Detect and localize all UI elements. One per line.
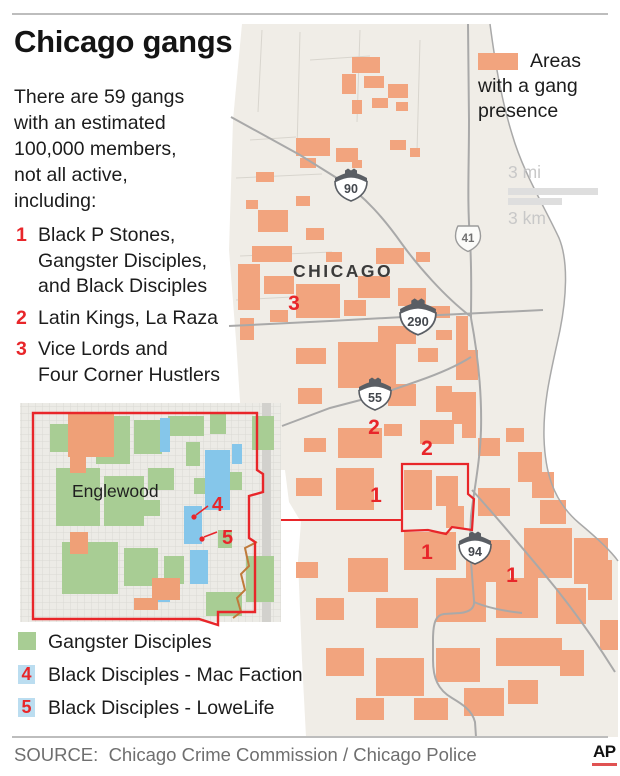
englewood-inset-map: Englewood 45 — [20, 403, 281, 625]
gang-area — [452, 392, 476, 424]
gang-area — [534, 638, 562, 666]
gang-area — [414, 698, 448, 720]
area-legend: Areas with a gang presence — [478, 49, 612, 124]
gang-area — [436, 476, 458, 506]
gang-area — [418, 348, 438, 362]
gang-area — [456, 350, 478, 380]
gang-list-label: Latin Kings, La Raza — [38, 306, 218, 332]
gang-area — [296, 478, 322, 496]
gang-area — [298, 388, 322, 404]
gang-area — [456, 316, 468, 352]
page-title: Chicago gangs — [14, 24, 232, 60]
top-rule — [12, 13, 608, 15]
ap-logo: AP — [592, 742, 617, 766]
gang-area — [364, 76, 384, 88]
gang-area — [336, 468, 374, 510]
gang-list-number: 3 — [16, 337, 38, 388]
gang-area — [296, 562, 318, 578]
gangster-disciples-block — [230, 472, 242, 490]
inset-legend-row: 5Black Disciples - LoweLife — [18, 698, 303, 718]
shield-number: 90 — [344, 182, 358, 196]
gang-area — [462, 420, 476, 438]
city-label: CHICAGO — [293, 261, 393, 281]
gang-area — [338, 342, 396, 388]
gang-area — [416, 252, 430, 262]
inset-legend-label: Black Disciples - Mac Faction — [48, 665, 303, 685]
shield-number: 41 — [462, 233, 475, 245]
gang-area — [384, 424, 402, 436]
gang-area — [396, 102, 408, 111]
gangster-disciples-block — [186, 442, 200, 466]
gang-area — [560, 650, 584, 676]
gangster-disciples-block — [168, 416, 204, 436]
gang-area — [256, 172, 274, 182]
black-disciples-block — [160, 418, 170, 452]
gang-area — [296, 348, 326, 364]
gang-area — [304, 438, 326, 452]
gang-area — [316, 598, 344, 620]
gang-area — [532, 472, 554, 498]
gang-list-item-2: 2Latin Kings, La Raza — [16, 306, 246, 332]
scale-km-label: 3 km — [508, 208, 546, 229]
gang-area — [252, 246, 292, 262]
gang-area — [356, 698, 384, 720]
other-gang-block — [68, 413, 114, 457]
gang-marker-1: 1 — [506, 564, 518, 587]
faction-marker-4: 4 — [212, 494, 224, 516]
gang-area — [258, 210, 288, 232]
gangster-disciples-swatch — [18, 632, 36, 650]
intro-text: There are 59 gangs with an estimated 100… — [14, 84, 229, 214]
gang-area — [508, 680, 538, 704]
shield-number: 55 — [368, 391, 382, 405]
gangster-disciples-block — [246, 556, 274, 602]
inset-legend-row: 4Black Disciples - Mac Faction — [18, 665, 303, 685]
gang-area — [600, 620, 618, 650]
gang-marker-2: 2 — [368, 416, 380, 439]
marker-dot — [199, 536, 204, 541]
gang-area — [436, 648, 480, 682]
gang-area — [306, 228, 324, 240]
gang-area — [390, 140, 406, 150]
gang-area — [296, 196, 310, 206]
gang-marker-3: 3 — [288, 292, 300, 315]
gang-area — [352, 160, 362, 168]
gang-area — [388, 84, 408, 98]
scale-bar-km — [508, 198, 562, 205]
gangster-disciples-block — [140, 500, 160, 516]
gang-area — [436, 578, 486, 622]
faction-number-swatch-4: 4 — [18, 665, 35, 684]
gangster-disciples-block — [210, 414, 226, 434]
gang-area — [326, 648, 364, 676]
gang-area — [246, 200, 258, 209]
gang-list-item-3: 3Vice Lords and Four Corner Hustlers — [16, 337, 246, 388]
gang-area — [342, 74, 356, 94]
gang-area-swatch — [478, 53, 518, 70]
inset-neighborhood-label: Englewood — [72, 481, 159, 501]
gang-list-item-1: 1Black P Stones, Gangster Disciples, and… — [16, 223, 246, 300]
infographic-canvas: CHICAGO 90412905594 322111 Englewood 45 … — [0, 0, 620, 776]
inset-legend-label: Black Disciples - LoweLife — [48, 698, 275, 718]
gang-area — [410, 148, 420, 157]
gang-area — [352, 57, 380, 73]
gang-area — [296, 284, 340, 318]
other-gang-block — [152, 578, 180, 600]
gangster-disciples-block — [134, 420, 162, 454]
black-disciples-block — [190, 550, 208, 584]
scale-bar-mi — [508, 188, 598, 195]
scale-mi-label: 3 mi — [508, 162, 541, 183]
gang-area — [506, 428, 524, 442]
faction-number-swatch-5: 5 — [18, 698, 35, 717]
gang-area — [496, 638, 534, 666]
gang-area — [446, 506, 464, 528]
gang-area — [344, 300, 366, 316]
other-gang-block — [134, 598, 158, 610]
gang-area — [270, 310, 288, 322]
other-gang-block — [70, 457, 86, 473]
gang-list-label: Black P Stones, Gangster Disciples, and … — [38, 223, 207, 300]
inset-legend-label: Gangster Disciples — [48, 632, 212, 652]
inset-legend-row: Gangster Disciples — [18, 632, 303, 652]
gang-list-number: 2 — [16, 306, 38, 332]
gang-area — [348, 558, 388, 592]
gang-marker-1: 1 — [421, 541, 433, 564]
gang-area — [376, 658, 424, 696]
inset-legend: Gangster Disciples4Black Disciples - Mac… — [18, 632, 303, 731]
gang-area — [296, 138, 330, 156]
shield-number: 94 — [468, 545, 482, 559]
gang-area — [436, 330, 452, 340]
other-gang-block — [70, 532, 88, 554]
land-area — [229, 24, 618, 737]
gang-area — [352, 100, 362, 114]
black-disciples-block — [232, 444, 242, 464]
gang-marker-2: 2 — [421, 437, 433, 460]
gang-area — [372, 98, 388, 108]
source-line: SOURCE: Chicago Crime Commission / Chica… — [14, 744, 477, 766]
gang-marker-1: 1 — [370, 484, 382, 507]
gangster-disciples-block — [252, 416, 274, 450]
gang-area — [524, 528, 572, 578]
faction-marker-5: 5 — [222, 527, 233, 549]
gang-list-label: Vice Lords and Four Corner Hustlers — [38, 337, 220, 388]
gang-area — [404, 470, 432, 510]
gangster-disciples-block — [194, 478, 206, 494]
gang-area — [336, 148, 358, 162]
gang-list: 1Black P Stones, Gangster Disciples, and… — [16, 223, 246, 394]
gang-list-number: 1 — [16, 223, 38, 300]
bottom-rule — [12, 736, 608, 738]
gang-area — [588, 560, 612, 600]
gang-area — [376, 598, 418, 628]
shield-number: 290 — [407, 314, 428, 329]
marker-dot — [191, 514, 196, 519]
gang-area — [436, 386, 452, 412]
